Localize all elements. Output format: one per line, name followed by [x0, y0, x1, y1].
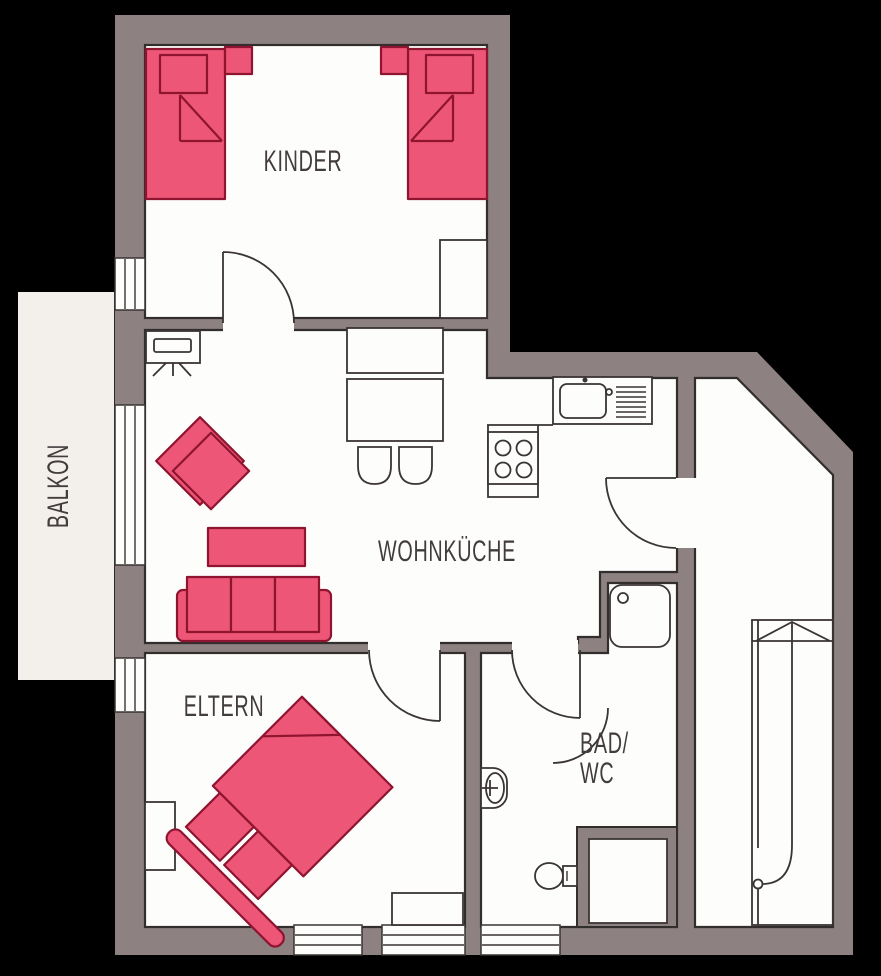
shower — [610, 585, 670, 647]
sofa-cushion — [231, 577, 275, 632]
label-wohnkueche: WOHNKÜCHE — [378, 535, 516, 568]
pillow — [160, 55, 207, 93]
sofa-cushion — [275, 577, 319, 632]
coffee-table — [208, 528, 305, 566]
chest-eltern — [392, 893, 463, 925]
label-eltern: ELTERN — [184, 690, 265, 723]
stove — [488, 432, 538, 484]
wardrobe-kinder — [440, 240, 487, 318]
room-stair-hall — [695, 378, 833, 927]
pillow — [426, 55, 473, 93]
door-opening-hall — [675, 478, 698, 548]
toilet — [535, 863, 577, 889]
dining-chair — [358, 447, 391, 484]
door-opening-kinder — [223, 315, 294, 333]
bed-kinder-right — [408, 49, 487, 199]
window-bad-bottom — [481, 925, 560, 955]
bed-kinder-left — [146, 49, 225, 199]
washbasin — [481, 768, 507, 808]
sofa — [177, 577, 331, 641]
tv-icon — [154, 339, 191, 352]
window-kinder-left — [115, 258, 145, 310]
dining-table — [347, 328, 443, 441]
nightstand-kinder-right — [381, 47, 408, 74]
kitchen-sink — [553, 377, 652, 424]
label-kinder: KINDER — [264, 145, 343, 178]
drainboard — [616, 387, 646, 417]
window-balcony-door — [115, 405, 145, 565]
label-balkon: BALKON — [42, 444, 75, 528]
window-eltern-bottom-2 — [382, 925, 465, 955]
window-eltern-left — [115, 658, 145, 712]
floor-plan-page: KINDER WOHNKÜCHE ELTERN BAD/ WC BALKON — [0, 0, 881, 976]
window-eltern-bottom-1 — [294, 925, 362, 955]
label-bad-line2: WC — [580, 757, 614, 790]
floor-plan: KINDER WOHNKÜCHE ELTERN BAD/ WC BALKON — [0, 0, 881, 976]
sofa-cushion — [187, 577, 231, 632]
dining-chair — [399, 447, 432, 484]
shaft-opening — [589, 839, 667, 923]
label-bad-line1: BAD/ — [580, 727, 629, 760]
nightstand-kinder-left — [225, 47, 252, 74]
door-opening-bad — [512, 640, 578, 656]
door-opening-eltern — [368, 640, 440, 656]
